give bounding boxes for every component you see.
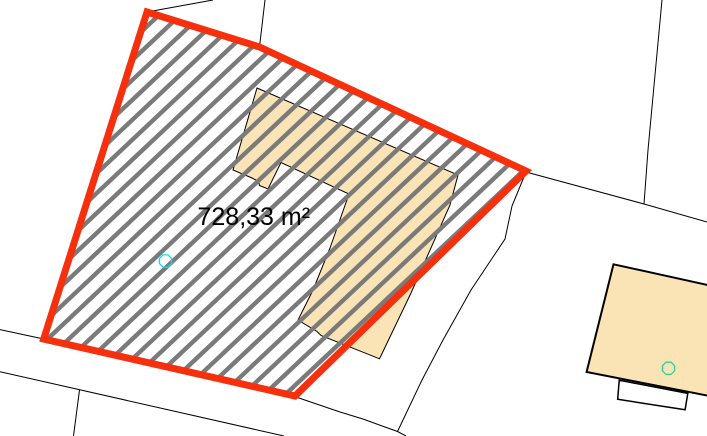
svg-text:728,33 m²: 728,33 m² — [198, 203, 311, 231]
